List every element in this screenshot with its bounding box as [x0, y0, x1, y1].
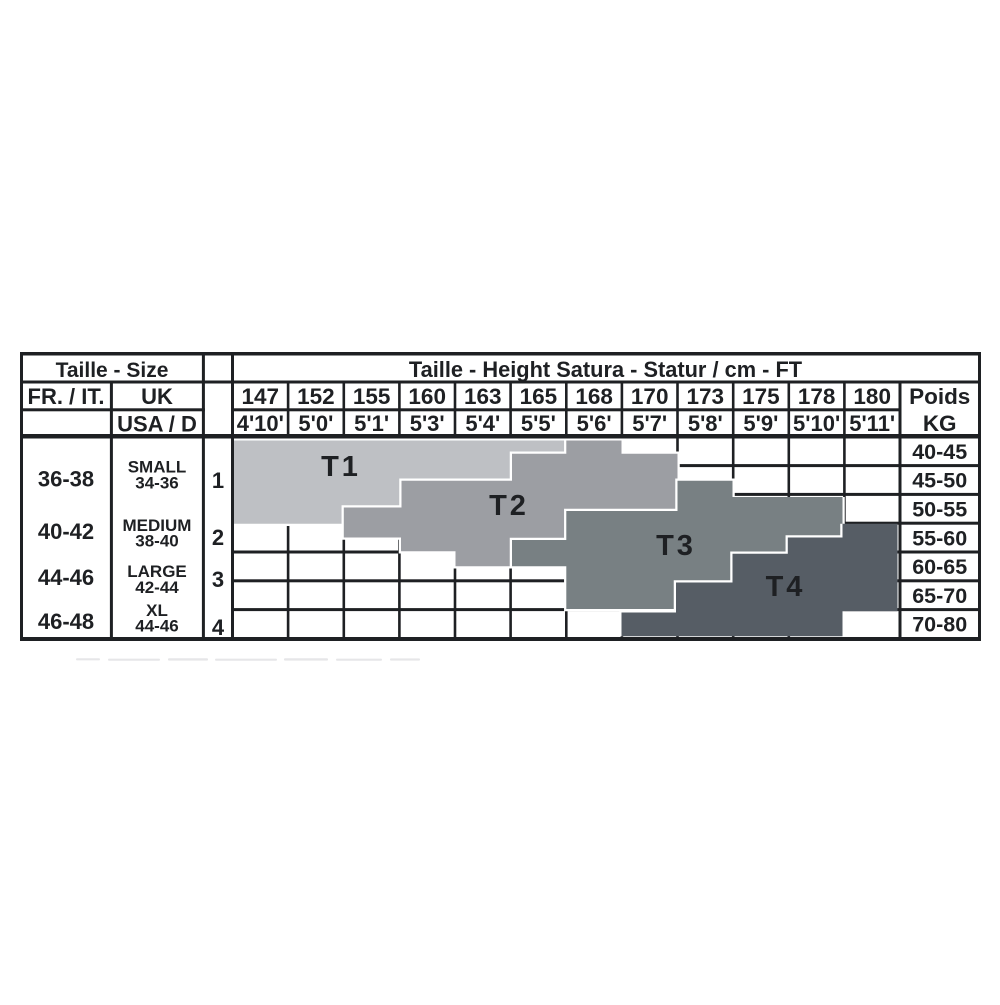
- svg-text:50-55: 50-55: [912, 498, 967, 522]
- svg-text:UK: UK: [141, 384, 173, 409]
- svg-text:KG: KG: [923, 411, 957, 436]
- svg-text:175: 175: [742, 384, 780, 409]
- svg-text:USA / D: USA / D: [117, 412, 197, 437]
- svg-text:3: 3: [212, 567, 224, 592]
- svg-text:65-70: 65-70: [912, 584, 967, 608]
- svg-text:1: 1: [212, 468, 224, 493]
- svg-text:42-44: 42-44: [135, 578, 179, 597]
- svg-text:4: 4: [212, 615, 225, 640]
- svg-text:178: 178: [798, 384, 836, 409]
- svg-text:36-38: 36-38: [38, 467, 94, 492]
- svg-text:5'11': 5'11': [849, 411, 895, 436]
- svg-text:5'4': 5'4': [465, 411, 500, 436]
- svg-text:T2: T2: [489, 490, 529, 522]
- svg-text:165: 165: [520, 384, 558, 409]
- svg-text:5'6': 5'6': [577, 411, 612, 436]
- svg-text:40-42: 40-42: [38, 519, 94, 544]
- svg-text:Poids: Poids: [909, 384, 970, 409]
- svg-text:5'3': 5'3': [410, 411, 445, 436]
- svg-text:147: 147: [242, 384, 280, 409]
- svg-text:173: 173: [687, 384, 725, 409]
- svg-text:4'10': 4'10': [237, 411, 284, 436]
- svg-text:160: 160: [408, 384, 446, 409]
- svg-text:5'1': 5'1': [354, 411, 389, 436]
- svg-text:40-45: 40-45: [912, 440, 967, 464]
- svg-text:60-65: 60-65: [912, 555, 967, 579]
- svg-text:5'8': 5'8': [688, 411, 723, 436]
- svg-text:152: 152: [297, 384, 335, 409]
- svg-text:5'0': 5'0': [298, 411, 333, 436]
- svg-text:5'9': 5'9': [743, 411, 778, 436]
- svg-text:T1: T1: [321, 451, 361, 483]
- svg-text:155: 155: [353, 384, 391, 409]
- svg-text:34-36: 34-36: [135, 474, 178, 493]
- svg-text:Taille - Size: Taille - Size: [56, 359, 169, 382]
- svg-text:168: 168: [575, 384, 613, 409]
- svg-text:180: 180: [853, 384, 891, 409]
- svg-text:2: 2: [212, 525, 224, 550]
- svg-text:45-50: 45-50: [912, 469, 967, 493]
- svg-text:38-40: 38-40: [135, 532, 178, 551]
- svg-text:170: 170: [631, 384, 669, 409]
- svg-text:Taille - Height Satura - Statu: Taille - Height Satura - Statur / cm - F…: [409, 357, 803, 382]
- svg-text:44-46: 44-46: [38, 565, 94, 590]
- svg-text:T3: T3: [656, 530, 696, 562]
- svg-text:T4: T4: [766, 571, 806, 603]
- svg-text:5'7': 5'7': [632, 411, 667, 436]
- svg-text:FR. / IT.: FR. / IT.: [28, 384, 105, 409]
- svg-text:163: 163: [464, 384, 502, 409]
- svg-text:46-48: 46-48: [38, 609, 94, 634]
- svg-text:5'5': 5'5': [521, 411, 556, 436]
- svg-text:44-46: 44-46: [135, 617, 178, 636]
- svg-text:5'10': 5'10': [793, 411, 840, 436]
- svg-text:55-60: 55-60: [912, 526, 967, 550]
- svg-text:70-80: 70-80: [912, 613, 967, 637]
